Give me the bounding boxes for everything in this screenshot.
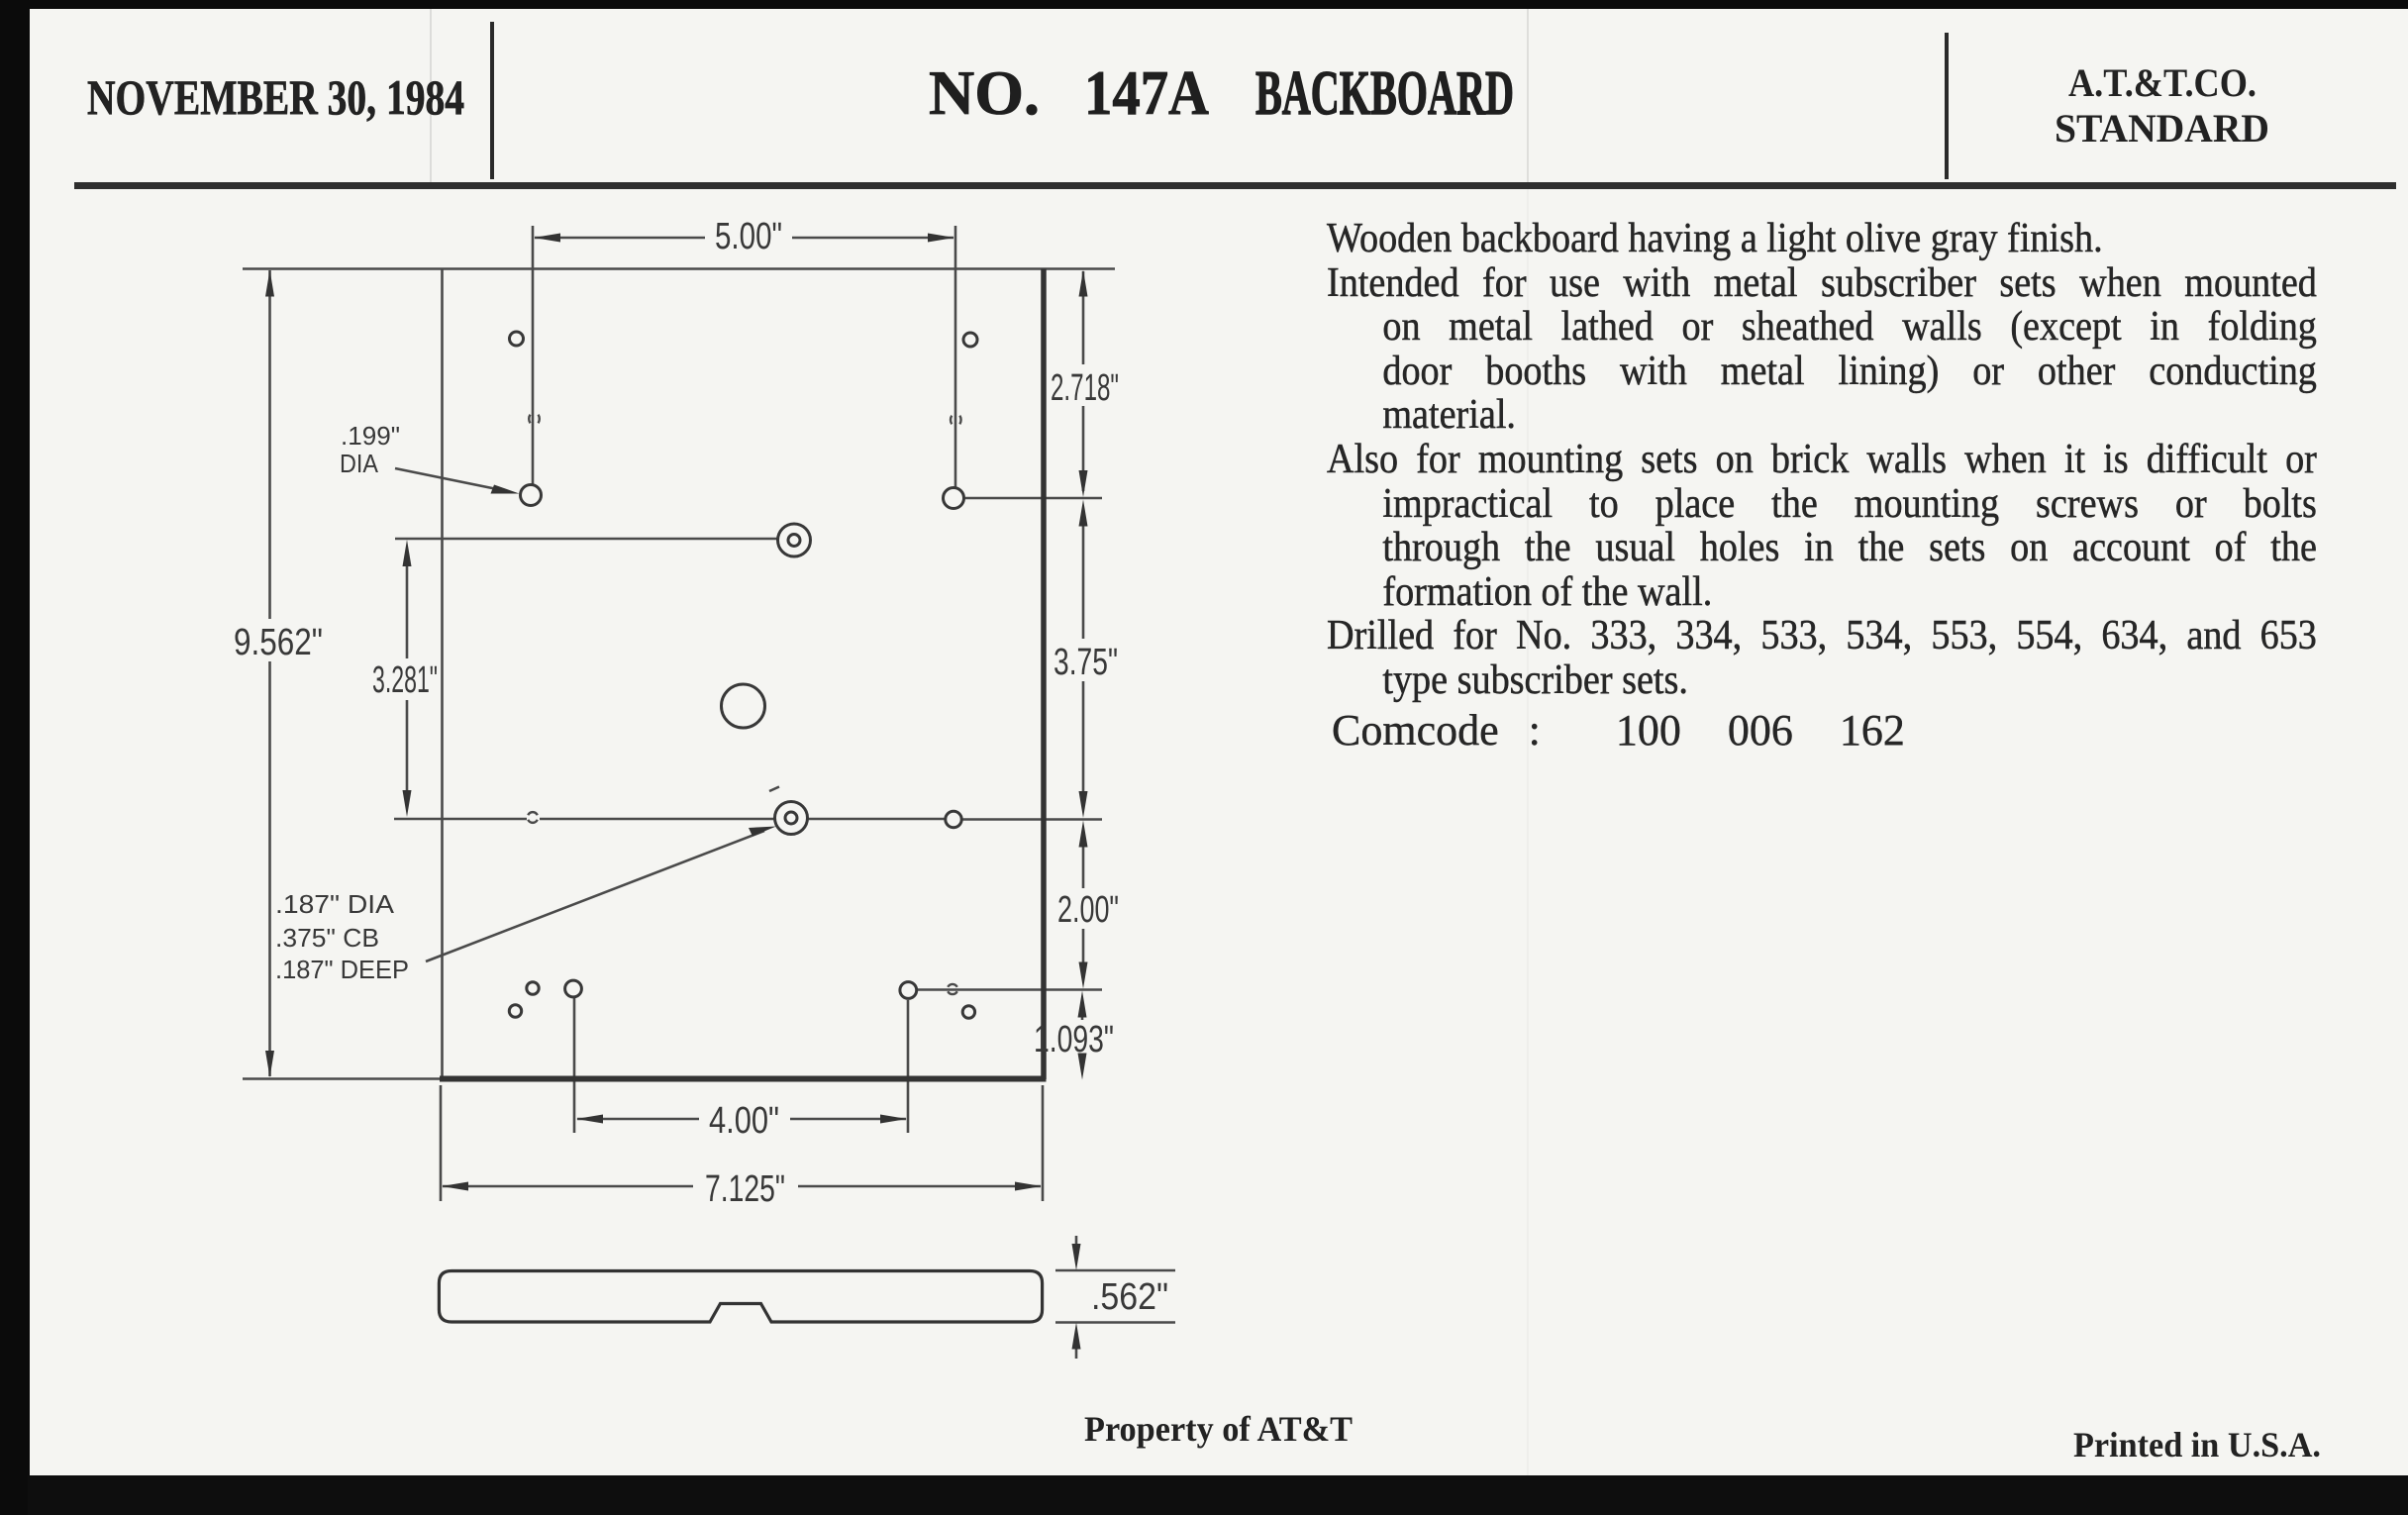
svg-text:Property of AT&T: Property of AT&T [1084, 1409, 1353, 1449]
svg-text:DIA: DIA [340, 449, 379, 478]
svg-text:.187" DEEP: .187" DEEP [275, 955, 409, 984]
svg-text:5.00": 5.00" [715, 216, 782, 257]
svg-text:3.281": 3.281" [372, 659, 438, 701]
svg-text:2.718": 2.718" [1051, 367, 1119, 409]
svg-text:.562": .562" [1091, 1276, 1168, 1318]
svg-text:STANDARD: STANDARD [2055, 106, 2269, 151]
svg-text:9.562": 9.562" [234, 622, 323, 663]
svg-text:7.125": 7.125" [705, 1168, 785, 1210]
svg-text:3.75": 3.75" [1053, 642, 1118, 683]
svg-text:BACKBOARD: BACKBOARD [1255, 57, 1514, 128]
svg-text:2.00": 2.00" [1057, 889, 1119, 931]
svg-text:A.T.&T.CO.: A.T.&T.CO. [2068, 60, 2257, 105]
svg-text:4.00": 4.00" [709, 1100, 779, 1142]
svg-text:Printed in U.S.A.: Printed in U.S.A. [2073, 1425, 2321, 1464]
svg-text:.375" CB: .375" CB [275, 923, 379, 953]
svg-text:.187" DIA: .187" DIA [275, 889, 395, 919]
svg-text:.199": .199" [341, 421, 400, 451]
svg-text:1.093": 1.093" [1034, 1019, 1114, 1060]
